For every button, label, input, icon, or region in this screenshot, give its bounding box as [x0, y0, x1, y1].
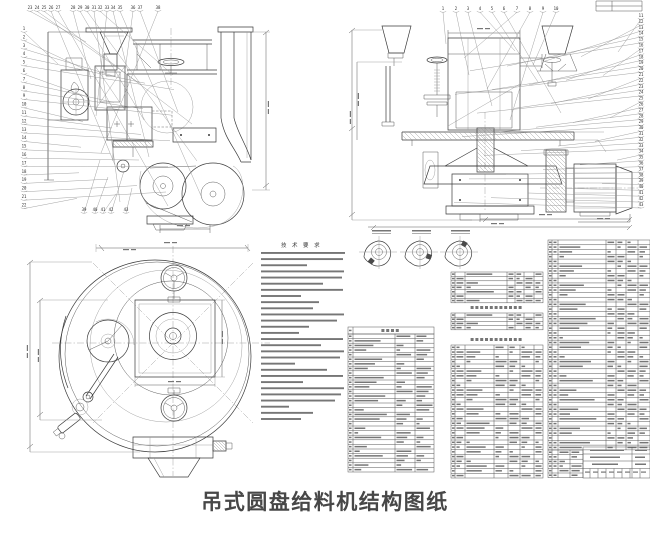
callout-label: 41 — [639, 190, 644, 195]
callout-label: 27 — [56, 5, 61, 10]
callout-label: 21 — [22, 194, 27, 199]
callout-label: 23 — [28, 5, 33, 10]
callout-label: 6 — [503, 6, 506, 11]
callout-label: 38 — [639, 172, 644, 177]
spec-table — [348, 327, 434, 472]
callout-label: 34 — [639, 149, 644, 154]
callout-label: 12 — [22, 118, 27, 123]
detail-views — [359, 236, 478, 269]
callout-label: 23 — [639, 84, 644, 89]
title-block — [583, 447, 650, 478]
callout-label: 10 — [22, 102, 27, 107]
callout-label: 42 — [109, 207, 114, 212]
callout-label: 27 — [639, 107, 644, 112]
callout-label: 6 — [23, 68, 26, 73]
callout-label: 32 — [98, 5, 103, 10]
feed-hopper-left — [382, 26, 411, 53]
blueprint-page: 技 术 要 求 23242526272829303132333435363738… — [0, 0, 650, 555]
callout-label: 26 — [49, 5, 54, 10]
callout-label: 39 — [82, 207, 87, 212]
callout-label: 39 — [639, 178, 644, 183]
callout-label: 43 — [124, 207, 129, 212]
callout-label: 31 — [92, 5, 97, 10]
handwheel-bottom-icon — [161, 388, 187, 421]
callout-label: 4 — [23, 51, 26, 56]
gate-detail-view — [400, 236, 438, 269]
feeder-structure-drawing: 技 术 要 求 23242526272829303132333435363738… — [0, 0, 650, 482]
callout-label: 2 — [455, 6, 458, 11]
gearbox — [107, 107, 152, 140]
gate-detail-view — [440, 236, 478, 269]
hopper-lid — [86, 28, 132, 32]
callout-label: 2 — [23, 34, 26, 39]
callout-label: 36 — [131, 5, 136, 10]
callout-label: 30 — [85, 5, 90, 10]
callout-label: 8 — [23, 85, 26, 90]
callout-label: 9 — [23, 93, 26, 98]
callout-label: 37 — [639, 166, 644, 171]
callout-label: 15 — [639, 37, 644, 42]
callout-label: 21 — [639, 72, 644, 77]
callout-label: 16 — [639, 43, 644, 48]
callout-label: 4 — [479, 6, 482, 11]
mounting-plate — [135, 300, 215, 377]
callout-label: 8 — [529, 6, 532, 11]
callout-label: 19 — [22, 177, 27, 182]
callout-label: 14 — [22, 135, 27, 140]
callout-label: 28 — [71, 5, 76, 10]
callout-label: 16 — [22, 152, 27, 157]
callout-label: 37 — [138, 5, 143, 10]
callout-label: 5 — [23, 60, 26, 65]
callout-label: 31 — [639, 131, 644, 136]
revision-stamp — [596, 1, 642, 11]
plan-view — [27, 244, 270, 477]
callout-label: 13 — [22, 127, 27, 132]
callout-label: 38 — [156, 5, 161, 10]
feed-box — [448, 38, 520, 130]
callout-label: 28 — [639, 113, 644, 118]
callout-label: 17 — [22, 160, 27, 165]
notes-block: 技 术 要 求 — [261, 241, 345, 420]
callout-label: 13 — [639, 25, 644, 30]
callout-label: 33 — [105, 5, 110, 10]
feed-hopper-right — [542, 26, 573, 54]
callout-label: 7 — [516, 6, 519, 11]
callout-label: 25 — [42, 5, 47, 10]
callout-label: 3 — [467, 6, 470, 11]
callout-label: 40 — [639, 184, 644, 189]
callout-label: 3 — [23, 43, 26, 48]
callout-label: 11 — [22, 110, 27, 115]
callout-label: 32 — [639, 137, 644, 142]
callout-label: 20 — [639, 66, 644, 71]
image-caption: 吊式圆盘给料机结构图纸 — [0, 486, 650, 516]
gate-handwheel — [424, 57, 450, 117]
callout-label: 35 — [639, 155, 644, 160]
callout-label: 22 — [22, 202, 27, 207]
callout-label: 1 — [23, 26, 26, 31]
parts-table-right — [548, 240, 650, 478]
callout-label: 41 — [101, 207, 106, 212]
callout-label: 26 — [639, 102, 644, 107]
callout-label: 1 — [442, 6, 445, 11]
callout-label: 24 — [639, 90, 644, 95]
callout-label: 12 — [639, 19, 644, 24]
parts-table-left — [451, 272, 543, 478]
callout-label: 29 — [639, 119, 644, 124]
callout-label: 14 — [639, 31, 644, 36]
callout-label: 36 — [639, 161, 644, 166]
callout-label: 17 — [639, 48, 644, 53]
belt-drive — [140, 163, 244, 228]
callout-label: 40 — [93, 207, 98, 212]
callout-label: 34 — [111, 5, 116, 10]
callout-label: 25 — [639, 96, 644, 101]
callout-label: 18 — [639, 54, 644, 59]
section-view — [349, 1, 642, 230]
callout-label: 42 — [639, 196, 644, 201]
callout-label: 18 — [22, 169, 27, 174]
callout-label: 15 — [22, 144, 27, 149]
callout-label: 30 — [639, 125, 644, 130]
callout-label: 11 — [639, 13, 644, 18]
callout-label: 24 — [35, 5, 40, 10]
gate-detail-view — [359, 236, 397, 269]
callout-label: 20 — [22, 186, 27, 191]
callout-label: 35 — [118, 5, 123, 10]
callout-label: 19 — [639, 60, 644, 65]
callout-label: 7 — [23, 76, 26, 81]
callout-label: 22 — [639, 78, 644, 83]
callout-label: 33 — [639, 143, 644, 148]
side-elevation-view — [44, 27, 270, 233]
discharge-duct — [218, 27, 253, 162]
callout-label: 9 — [542, 6, 545, 11]
callout-label: 5 — [491, 6, 494, 11]
callout-label: 10 — [554, 6, 559, 11]
notes-title: 技 术 要 求 — [281, 241, 322, 249]
callout-label: 43 — [639, 202, 644, 207]
callout-label: 29 — [78, 5, 83, 10]
